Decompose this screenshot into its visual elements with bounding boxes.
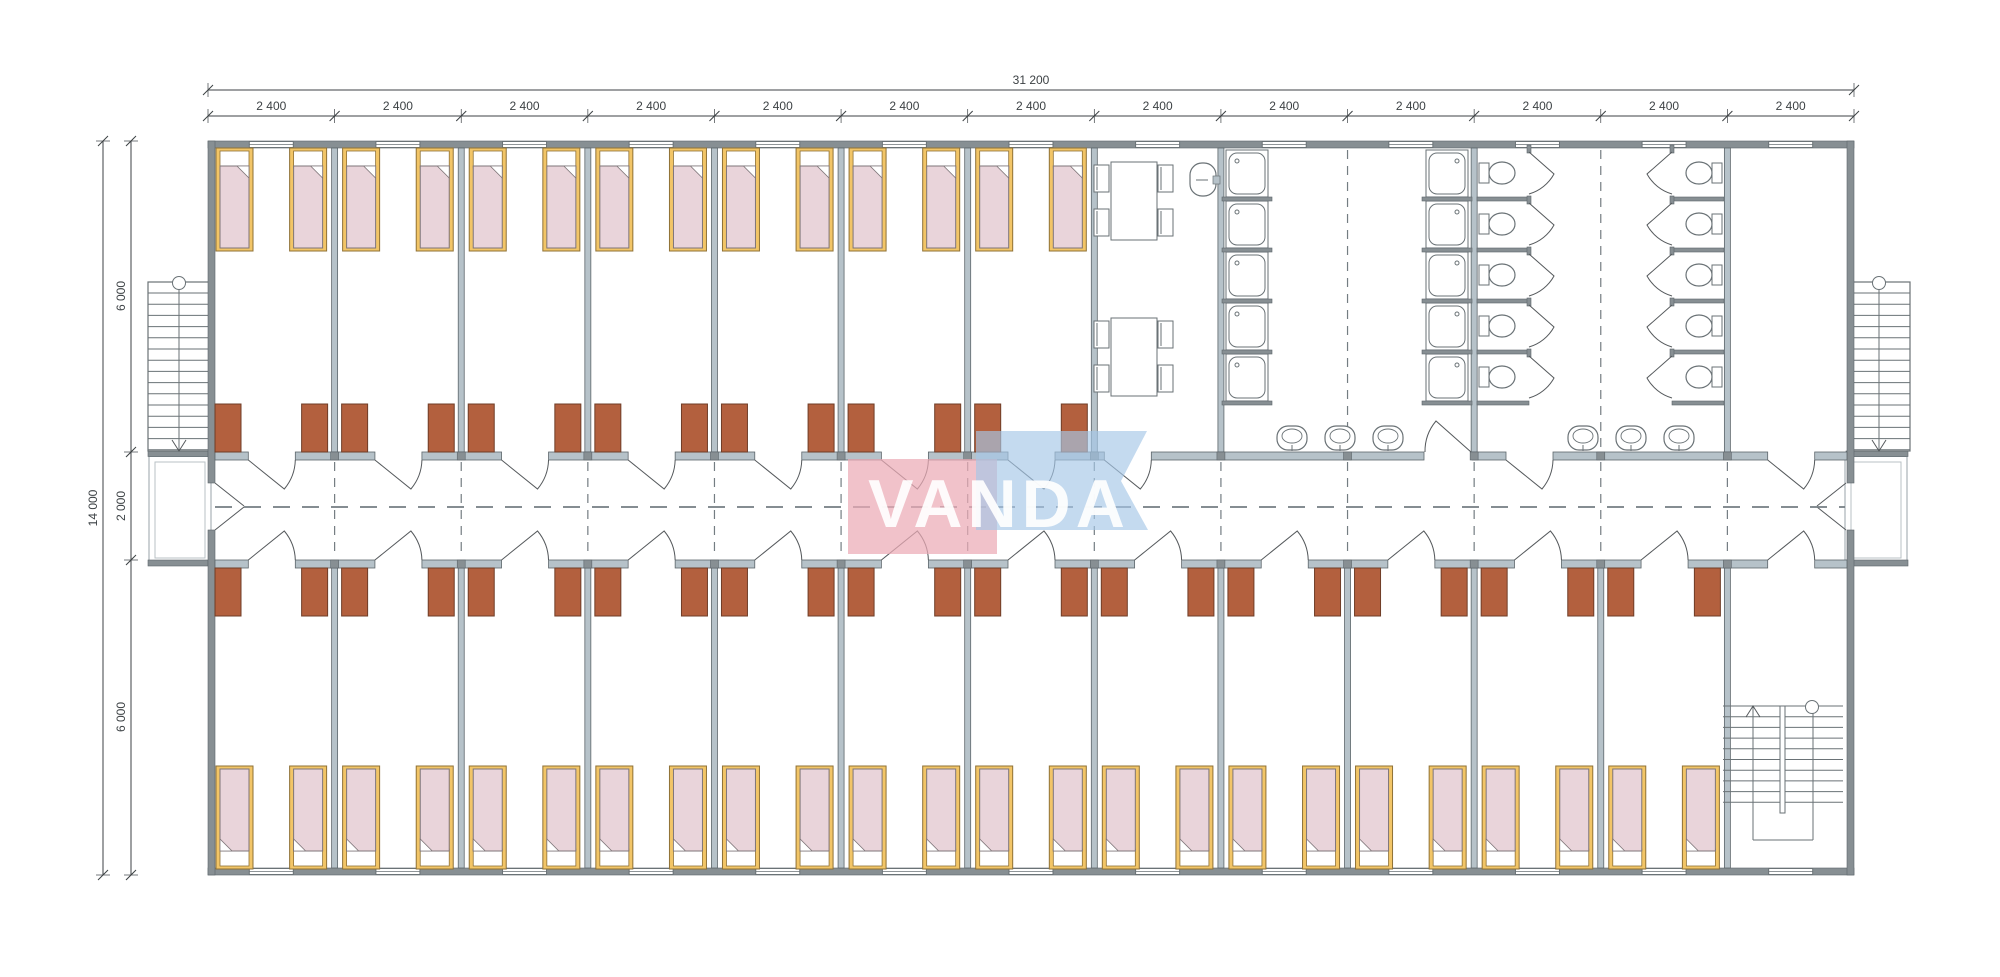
door-swing bbox=[1135, 531, 1182, 560]
bed-pillow bbox=[547, 151, 576, 168]
bed-mattress bbox=[1360, 769, 1389, 851]
partition-wall bbox=[332, 148, 338, 452]
bed-mattress bbox=[800, 166, 829, 248]
bed-pillow bbox=[347, 849, 376, 866]
door-swing bbox=[1641, 531, 1688, 560]
bed-mattress bbox=[980, 769, 1009, 851]
entrance-landing bbox=[149, 457, 211, 564]
bed-mattress bbox=[980, 166, 1009, 248]
floor-plan: 31 2002 4002 4002 4002 4002 4002 4002 40… bbox=[0, 0, 2000, 977]
bed-mattress bbox=[1053, 769, 1082, 851]
shower-divider-wall bbox=[1422, 299, 1472, 303]
bed-mattress bbox=[853, 769, 882, 851]
dimension-label: 2 400 bbox=[1016, 99, 1046, 113]
bed-mattress bbox=[294, 769, 323, 851]
bed-pillow bbox=[420, 151, 449, 168]
toilet-bowl bbox=[1489, 213, 1515, 235]
wall-cap bbox=[457, 452, 465, 460]
toilet-tank bbox=[1479, 265, 1489, 285]
partition-wall bbox=[585, 148, 591, 452]
bed-pillow bbox=[726, 151, 755, 168]
floor-plan-canvas: 31 2002 4002 4002 4002 4002 4002 4002 40… bbox=[0, 0, 2000, 977]
corridor-wall bbox=[1151, 452, 1424, 460]
wall-cap bbox=[584, 452, 592, 460]
partition-wall bbox=[1471, 568, 1477, 868]
corridor-wall bbox=[215, 452, 248, 460]
desk bbox=[468, 568, 494, 616]
bed-pillow bbox=[294, 849, 323, 866]
stair-start-marker bbox=[173, 277, 186, 290]
shower-divider-wall bbox=[1222, 401, 1272, 405]
dimension-label: 2 400 bbox=[1649, 99, 1679, 113]
bed-mattress bbox=[800, 769, 829, 851]
wall bbox=[148, 451, 208, 457]
corridor-wall bbox=[1815, 560, 1847, 568]
bed-mattress bbox=[726, 769, 755, 851]
desk bbox=[595, 404, 621, 452]
door-swing bbox=[628, 531, 675, 560]
dimension-label: 2 400 bbox=[1269, 99, 1299, 113]
stair-start-marker bbox=[1806, 701, 1819, 714]
chair bbox=[1158, 209, 1173, 236]
partition-wall bbox=[1218, 568, 1224, 868]
bed-pillow bbox=[853, 151, 882, 168]
desk bbox=[428, 404, 454, 452]
wall-cap bbox=[1670, 349, 1674, 357]
chair bbox=[1158, 321, 1173, 348]
desk bbox=[468, 404, 494, 452]
bed-pillow bbox=[220, 849, 249, 866]
wall-cap bbox=[710, 560, 718, 568]
desk bbox=[1481, 568, 1507, 616]
wall-cap bbox=[1527, 145, 1531, 153]
partition-wall bbox=[332, 568, 338, 868]
desk bbox=[595, 568, 621, 616]
corridor-wall bbox=[1815, 452, 1847, 460]
dining-table bbox=[1111, 318, 1157, 396]
desk bbox=[428, 568, 454, 616]
dimension-label: 2 400 bbox=[256, 99, 286, 113]
toilet-partition-wall bbox=[1477, 248, 1529, 252]
toilet-partition-wall bbox=[1477, 401, 1529, 405]
dimension-label: 2 000 bbox=[114, 491, 128, 521]
bed-pillow bbox=[1433, 849, 1462, 866]
desk bbox=[342, 404, 368, 452]
bed-pillow bbox=[1180, 849, 1209, 866]
bed-mattress bbox=[927, 166, 956, 248]
toilet-bowl bbox=[1686, 213, 1712, 235]
toilet-tank bbox=[1479, 367, 1489, 387]
shower-tray bbox=[1429, 204, 1465, 245]
bed-pillow bbox=[800, 849, 829, 866]
bed-mattress bbox=[347, 769, 376, 851]
toilet-door-swing bbox=[1529, 356, 1554, 398]
partition-wall bbox=[1598, 568, 1604, 868]
wall-cap bbox=[1527, 247, 1531, 255]
wall-cap bbox=[1217, 452, 1225, 460]
toilet-door-swing bbox=[1529, 152, 1554, 194]
shower-divider-wall bbox=[1422, 401, 1472, 405]
wall-cap bbox=[1597, 560, 1605, 568]
bed-pillow bbox=[1360, 849, 1389, 866]
entrance-landing bbox=[155, 462, 205, 558]
wall-cap bbox=[1470, 560, 1478, 568]
toilet-door-swing bbox=[1647, 254, 1672, 296]
wall-cap bbox=[1670, 196, 1674, 204]
wall bbox=[208, 141, 215, 483]
bed-pillow bbox=[473, 849, 502, 866]
bed-pillow bbox=[1560, 849, 1589, 866]
bed-mattress bbox=[294, 166, 323, 248]
chair bbox=[1094, 165, 1109, 192]
wall bbox=[1846, 560, 1908, 566]
desk bbox=[681, 404, 707, 452]
door-swing bbox=[1768, 531, 1815, 560]
wall bbox=[208, 530, 215, 875]
partition-wall bbox=[1345, 568, 1351, 868]
wall-cap bbox=[964, 560, 972, 568]
door-swing bbox=[248, 531, 295, 560]
dimension-label: 2 400 bbox=[1776, 99, 1806, 113]
toilet-tank bbox=[1712, 316, 1722, 336]
wall-cap bbox=[1470, 452, 1478, 460]
toilet-tank bbox=[1712, 367, 1722, 387]
toilet-bowl bbox=[1489, 315, 1515, 337]
corridor-wall bbox=[215, 560, 248, 568]
chair bbox=[1094, 209, 1109, 236]
partition-wall bbox=[585, 568, 591, 868]
toilet-door-swing bbox=[1647, 203, 1672, 245]
entrance-door bbox=[215, 483, 244, 506]
toilet-bowl bbox=[1686, 366, 1712, 388]
desk bbox=[1101, 568, 1127, 616]
toilet-partition-wall bbox=[1672, 197, 1724, 201]
door-swing bbox=[1261, 531, 1308, 560]
bed-mattress bbox=[547, 166, 576, 248]
desk bbox=[975, 568, 1001, 616]
toilet-tank bbox=[1479, 214, 1489, 234]
shower-divider-wall bbox=[1222, 299, 1272, 303]
shower-divider-wall bbox=[1222, 197, 1272, 201]
chair bbox=[1158, 365, 1173, 392]
toilet-bowl bbox=[1686, 162, 1712, 184]
shower-tray bbox=[1429, 153, 1465, 194]
toilet-partition-wall bbox=[1477, 197, 1529, 201]
entrance-door bbox=[1817, 483, 1846, 506]
dimension-label: 6 000 bbox=[114, 281, 128, 311]
bed-mattress bbox=[1486, 769, 1515, 851]
entrance-landing bbox=[1851, 462, 1901, 558]
desk bbox=[555, 568, 581, 616]
bed-mattress bbox=[1180, 769, 1209, 851]
dimension-label: 2 400 bbox=[1143, 99, 1173, 113]
bed-mattress bbox=[673, 769, 702, 851]
bed-pillow bbox=[1106, 849, 1135, 866]
shower-divider-wall bbox=[1422, 197, 1472, 201]
bed-mattress bbox=[473, 769, 502, 851]
bed-pillow bbox=[473, 151, 502, 168]
toilet-bowl bbox=[1489, 366, 1515, 388]
partition-wall bbox=[1091, 148, 1097, 452]
bed-mattress bbox=[420, 769, 449, 851]
bed-pillow bbox=[980, 151, 1009, 168]
toilet-bowl bbox=[1489, 162, 1515, 184]
desk bbox=[1355, 568, 1381, 616]
wall-cap bbox=[1527, 349, 1531, 357]
partition-wall bbox=[965, 148, 971, 452]
bed-mattress bbox=[347, 166, 376, 248]
bed-mattress bbox=[1686, 769, 1715, 851]
wall-cap bbox=[1217, 560, 1225, 568]
desk bbox=[721, 404, 747, 452]
desk bbox=[1228, 568, 1254, 616]
bed-pillow bbox=[1053, 849, 1082, 866]
bed-pillow bbox=[1233, 849, 1262, 866]
wall-cap bbox=[1670, 247, 1674, 255]
shower-tray bbox=[1229, 204, 1265, 245]
door-swing bbox=[502, 531, 549, 560]
dimension-label: 2 400 bbox=[510, 99, 540, 113]
stair-start-marker bbox=[1873, 277, 1886, 290]
desk bbox=[215, 568, 241, 616]
desk bbox=[215, 404, 241, 452]
desk bbox=[1568, 568, 1594, 616]
desk bbox=[848, 404, 874, 452]
desk bbox=[808, 404, 834, 452]
shower-divider-wall bbox=[1422, 248, 1472, 252]
bed-mattress bbox=[220, 166, 249, 248]
bed-pillow bbox=[1613, 849, 1642, 866]
bed-pillow bbox=[673, 151, 702, 168]
shower-tray bbox=[1429, 306, 1465, 347]
wall bbox=[1847, 141, 1854, 483]
wall-cap bbox=[584, 560, 592, 568]
wall-cap bbox=[1723, 452, 1731, 460]
bed-mattress bbox=[1560, 769, 1589, 851]
bed-mattress bbox=[726, 166, 755, 248]
partition-wall bbox=[838, 568, 844, 868]
wall-cap bbox=[710, 452, 718, 460]
chair bbox=[1094, 321, 1109, 348]
bed-pillow bbox=[927, 151, 956, 168]
bed-mattress bbox=[1613, 769, 1642, 851]
door-swing bbox=[755, 531, 802, 560]
desk bbox=[1694, 568, 1720, 616]
shower-divider-wall bbox=[1222, 350, 1272, 354]
desk bbox=[555, 404, 581, 452]
shower-tray bbox=[1229, 255, 1265, 296]
toilet-bowl bbox=[1686, 315, 1712, 337]
bed-mattress bbox=[1433, 769, 1462, 851]
desk bbox=[302, 568, 328, 616]
shower-tray bbox=[1229, 306, 1265, 347]
toilet-door-swing bbox=[1529, 305, 1554, 347]
wall bbox=[148, 560, 208, 566]
wall-cap bbox=[1723, 560, 1731, 568]
door-swing bbox=[1768, 460, 1815, 489]
entrance-landing bbox=[1845, 457, 1907, 564]
wall-cap bbox=[964, 452, 972, 460]
toilet-door-swing bbox=[1647, 152, 1672, 194]
bed-pillow bbox=[600, 151, 629, 168]
door-swing bbox=[1506, 460, 1553, 489]
shower-divider-wall bbox=[1222, 248, 1272, 252]
wall-cap bbox=[837, 560, 845, 568]
chair bbox=[1094, 365, 1109, 392]
bed-mattress bbox=[673, 166, 702, 248]
dimension-label: 2 400 bbox=[636, 99, 666, 113]
partition-wall bbox=[458, 568, 464, 868]
toilet-tank bbox=[1479, 316, 1489, 336]
bed-pillow bbox=[220, 151, 249, 168]
toilet-tank bbox=[1479, 163, 1489, 183]
bed-pillow bbox=[1053, 151, 1082, 168]
bed-pillow bbox=[420, 849, 449, 866]
bed-pillow bbox=[1307, 849, 1336, 866]
wall-cap bbox=[1527, 196, 1531, 204]
wall-cap bbox=[457, 560, 465, 568]
shower-tray bbox=[1429, 255, 1465, 296]
desk bbox=[721, 568, 747, 616]
wall bbox=[1847, 530, 1854, 875]
wall-cap bbox=[1597, 452, 1605, 460]
desk bbox=[302, 404, 328, 452]
shower-tray bbox=[1429, 357, 1465, 398]
bed-mattress bbox=[220, 769, 249, 851]
bed-mattress bbox=[420, 166, 449, 248]
chair bbox=[1158, 165, 1173, 192]
shower-divider-wall bbox=[1422, 350, 1472, 354]
bed-mattress bbox=[927, 769, 956, 851]
toilet-partition-wall bbox=[1672, 350, 1724, 354]
bed-pillow bbox=[547, 849, 576, 866]
dimension-label: 14 000 bbox=[86, 489, 100, 526]
dimension-label: 6 000 bbox=[114, 702, 128, 732]
shower-tray bbox=[1229, 153, 1265, 194]
toilet-door-swing bbox=[1529, 203, 1554, 245]
partition-wall bbox=[1091, 568, 1097, 868]
toilet-partition-wall bbox=[1672, 401, 1724, 405]
bed-mattress bbox=[600, 166, 629, 248]
logo-text: VANDA bbox=[868, 466, 1130, 542]
bed-mattress bbox=[600, 769, 629, 851]
toilet-door-swing bbox=[1647, 305, 1672, 347]
toilet-partition-wall bbox=[1477, 299, 1529, 303]
wall-cap bbox=[837, 452, 845, 460]
stair-divider bbox=[1780, 706, 1785, 813]
dimension-label: 2 400 bbox=[383, 99, 413, 113]
desk bbox=[1188, 568, 1214, 616]
desk bbox=[1315, 568, 1341, 616]
bed-mattress bbox=[853, 166, 882, 248]
door-swing bbox=[375, 531, 422, 560]
partition-wall bbox=[711, 148, 717, 452]
bed-pillow bbox=[726, 849, 755, 866]
toilet-door-swing bbox=[1647, 356, 1672, 398]
wall-cap bbox=[331, 452, 339, 460]
door-swing bbox=[248, 460, 295, 489]
bed-pillow bbox=[800, 151, 829, 168]
toilet-partition-wall bbox=[1672, 299, 1724, 303]
wall-cap bbox=[1344, 560, 1352, 568]
toilet-tank bbox=[1712, 265, 1722, 285]
bed-pillow bbox=[1686, 849, 1715, 866]
bed-pillow bbox=[1486, 849, 1515, 866]
wall-cap bbox=[1527, 298, 1531, 306]
corridor-wall bbox=[1553, 452, 1768, 460]
dimension-label: 2 400 bbox=[889, 99, 919, 113]
bed-pillow bbox=[853, 849, 882, 866]
partition-wall bbox=[1724, 148, 1730, 452]
door-swing bbox=[755, 460, 802, 489]
door-swing bbox=[1425, 421, 1471, 452]
partition-wall bbox=[1724, 568, 1730, 868]
desk bbox=[808, 568, 834, 616]
desk bbox=[342, 568, 368, 616]
wall-cap bbox=[331, 560, 339, 568]
desk bbox=[935, 404, 961, 452]
door-swing bbox=[1388, 531, 1435, 560]
toilet-tank bbox=[1712, 214, 1722, 234]
toilet-door-swing bbox=[1529, 254, 1554, 296]
wall-cap bbox=[1670, 298, 1674, 306]
dimension-label: 31 200 bbox=[1013, 73, 1050, 87]
bed-pillow bbox=[673, 849, 702, 866]
bed-mattress bbox=[1233, 769, 1262, 851]
desk bbox=[1061, 568, 1087, 616]
door-swing bbox=[502, 460, 549, 489]
door-swing bbox=[628, 460, 675, 489]
toilet-bowl bbox=[1489, 264, 1515, 286]
wall-cap bbox=[1670, 145, 1674, 153]
toilet-partition-wall bbox=[1672, 248, 1724, 252]
toilet-bowl bbox=[1686, 264, 1712, 286]
bed-mattress bbox=[1053, 166, 1082, 248]
bed-mattress bbox=[547, 769, 576, 851]
partition-wall bbox=[838, 148, 844, 452]
desk bbox=[1441, 568, 1467, 616]
dimension-label: 2 400 bbox=[1396, 99, 1426, 113]
wall bbox=[1846, 451, 1908, 457]
partition-wall bbox=[711, 568, 717, 868]
shower-tray bbox=[1229, 357, 1265, 398]
bed-pillow bbox=[347, 151, 376, 168]
entrance-door bbox=[1817, 507, 1846, 530]
partition-wall bbox=[458, 148, 464, 452]
bed-mattress bbox=[473, 166, 502, 248]
dimension-label: 2 400 bbox=[1522, 99, 1552, 113]
dimension-label: 2 400 bbox=[763, 99, 793, 113]
wall-cap bbox=[1344, 452, 1352, 460]
entrance-door bbox=[215, 507, 244, 530]
toilet-partition-wall bbox=[1477, 350, 1529, 354]
toilet-tank bbox=[1712, 163, 1722, 183]
bed-pillow bbox=[980, 849, 1009, 866]
desk bbox=[935, 568, 961, 616]
dining-sink-tap bbox=[1213, 176, 1220, 184]
partition-wall bbox=[965, 568, 971, 868]
bed-pillow bbox=[294, 151, 323, 168]
bed-mattress bbox=[1106, 769, 1135, 851]
bed-mattress bbox=[1307, 769, 1336, 851]
bed-pillow bbox=[600, 849, 629, 866]
desk bbox=[1608, 568, 1634, 616]
dining-table bbox=[1111, 162, 1157, 240]
desk bbox=[848, 568, 874, 616]
desk bbox=[681, 568, 707, 616]
door-swing bbox=[375, 460, 422, 489]
door-swing bbox=[1514, 531, 1561, 560]
